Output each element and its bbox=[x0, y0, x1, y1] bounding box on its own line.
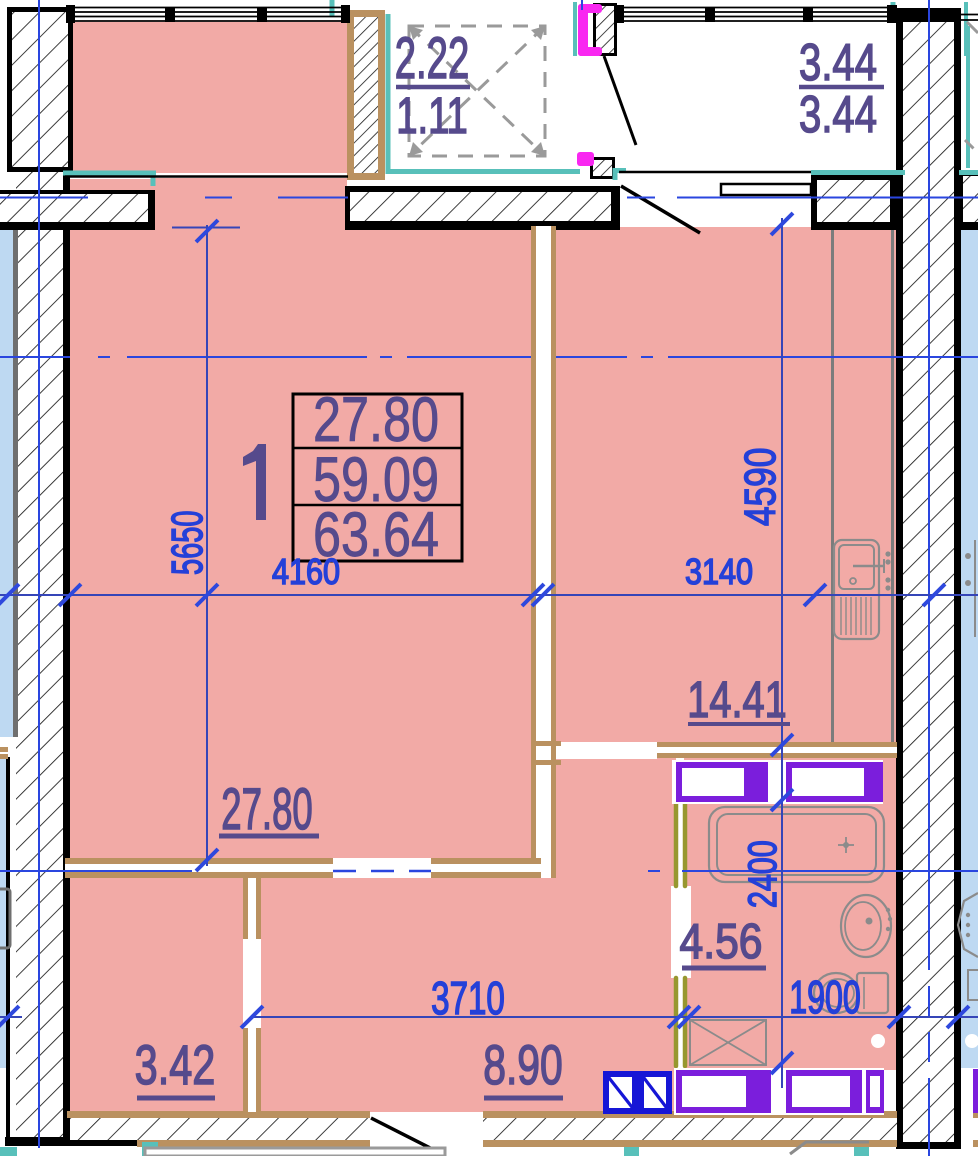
svg-text:4160: 4160 bbox=[272, 553, 340, 593]
svg-text:1.11: 1.11 bbox=[396, 87, 468, 145]
svg-text:27.80: 27.80 bbox=[221, 778, 312, 843]
svg-text:5650: 5650 bbox=[162, 510, 212, 575]
svg-text:3140: 3140 bbox=[685, 553, 753, 593]
svg-text:8.90: 8.90 bbox=[483, 1035, 563, 1097]
svg-text:4.56: 4.56 bbox=[680, 913, 763, 968]
svg-text:3.42: 3.42 bbox=[135, 1034, 216, 1097]
svg-text:4590: 4590 bbox=[736, 448, 785, 526]
svg-text:3.44: 3.44 bbox=[799, 33, 877, 91]
svg-text:3.44: 3.44 bbox=[799, 85, 877, 143]
svg-text:2.22: 2.22 bbox=[395, 27, 469, 91]
svg-text:14.41: 14.41 bbox=[687, 671, 787, 728]
svg-text:1900: 1900 bbox=[789, 972, 861, 1023]
svg-text:3710: 3710 bbox=[431, 974, 505, 1024]
svg-text:2400: 2400 bbox=[740, 840, 785, 908]
